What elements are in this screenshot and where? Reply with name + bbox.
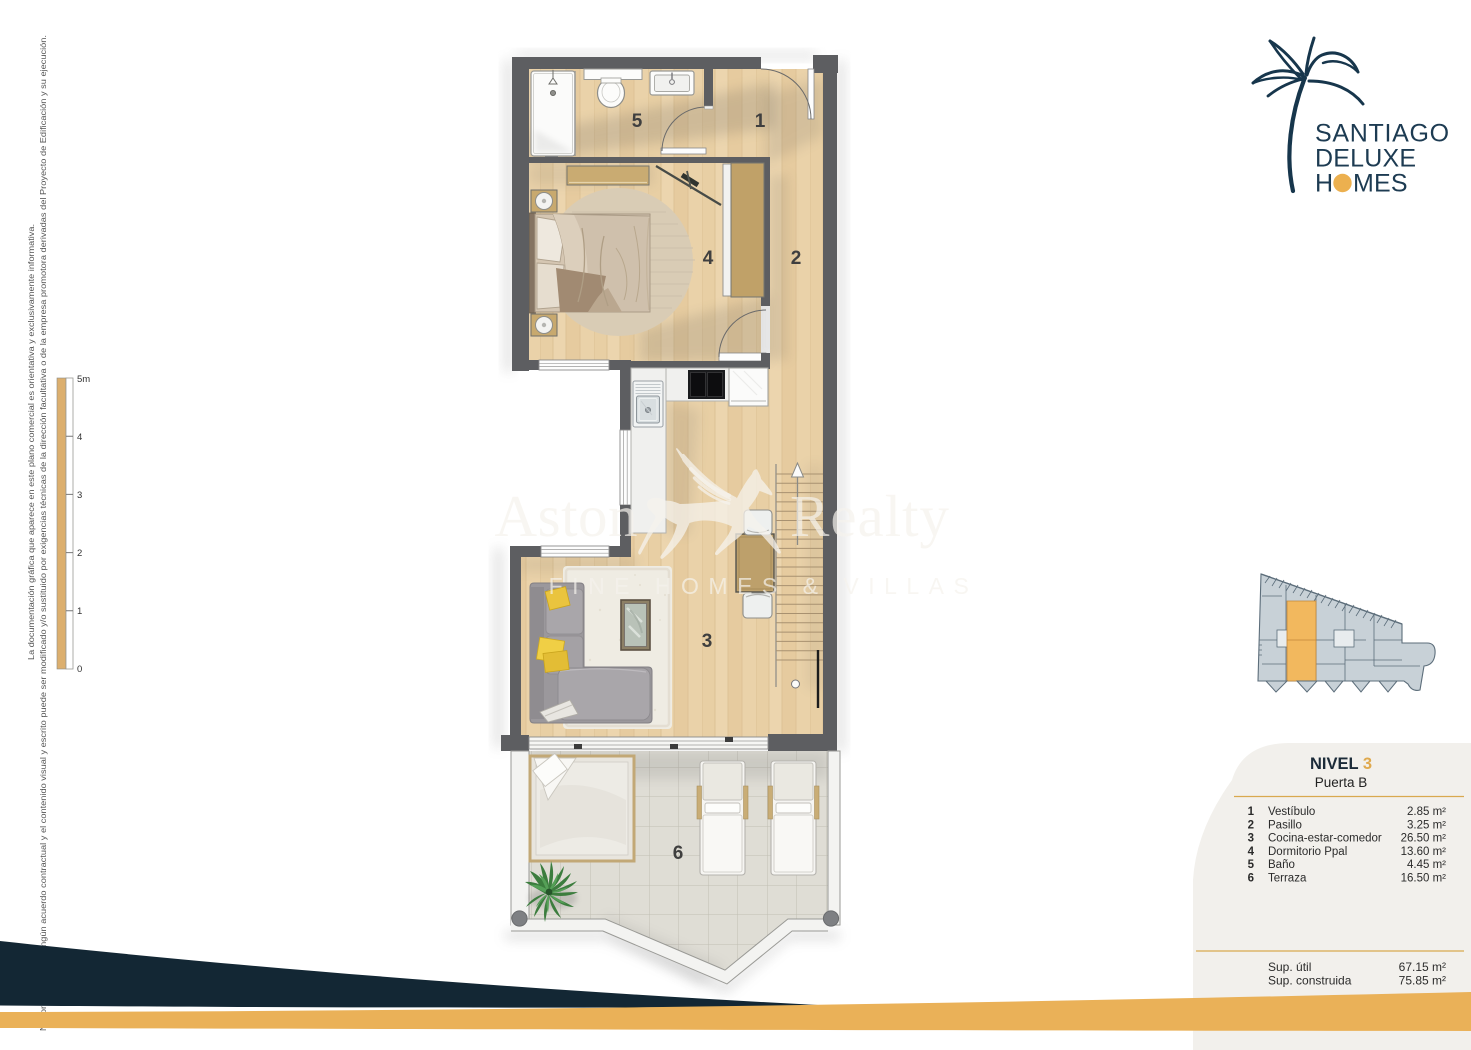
svg-text:Pasillo: Pasillo bbox=[1268, 819, 1302, 831]
svg-text:Realty: Realty bbox=[790, 483, 950, 549]
svg-text:3: 3 bbox=[702, 631, 713, 652]
svg-text:2: 2 bbox=[791, 248, 802, 269]
svg-text:Aston: Aston bbox=[495, 483, 638, 549]
svg-text:2.85 m²: 2.85 m² bbox=[1407, 806, 1446, 818]
svg-text:3: 3 bbox=[1248, 833, 1254, 845]
svg-text:Sup. construida: Sup. construida bbox=[1268, 974, 1352, 988]
svg-text:3: 3 bbox=[77, 490, 82, 501]
svg-text:4: 4 bbox=[703, 248, 714, 269]
svg-text:5: 5 bbox=[1248, 859, 1255, 871]
svg-text:NIVEL 3: NIVEL 3 bbox=[1310, 755, 1372, 773]
svg-text:5m: 5m bbox=[77, 374, 90, 385]
svg-text:16.50 m²: 16.50 m² bbox=[1401, 873, 1447, 885]
svg-text:MES: MES bbox=[1353, 170, 1408, 198]
svg-text:75.85 m²: 75.85 m² bbox=[1399, 974, 1446, 988]
svg-text:1: 1 bbox=[755, 111, 766, 132]
svg-text:0: 0 bbox=[77, 664, 82, 675]
svg-text:26.50 m²: 26.50 m² bbox=[1401, 833, 1447, 845]
svg-text:6: 6 bbox=[1248, 873, 1254, 885]
svg-text:Sup. útil: Sup. útil bbox=[1268, 960, 1311, 974]
svg-text:1: 1 bbox=[77, 606, 82, 617]
svg-text:67.15 m²: 67.15 m² bbox=[1399, 960, 1446, 974]
svg-text:4: 4 bbox=[77, 432, 82, 443]
svg-text:13.60 m²: 13.60 m² bbox=[1401, 846, 1447, 858]
svg-text:DELUXE: DELUXE bbox=[1315, 145, 1416, 173]
svg-text:Terraza: Terraza bbox=[1268, 873, 1307, 885]
svg-text:Dormitorio Ppal: Dormitorio Ppal bbox=[1268, 846, 1347, 858]
svg-text:SANTIAGO: SANTIAGO bbox=[1315, 120, 1450, 148]
svg-text:4: 4 bbox=[1248, 846, 1255, 858]
svg-text:No forma parte de ningún acuer: No forma parte de ningún acuerdo contrac… bbox=[39, 35, 48, 1031]
svg-text:3.25 m²: 3.25 m² bbox=[1407, 819, 1446, 831]
svg-text:1: 1 bbox=[1248, 806, 1255, 818]
svg-text:Puerta B: Puerta B bbox=[1315, 775, 1368, 790]
svg-text:Vestíbulo: Vestíbulo bbox=[1268, 806, 1315, 818]
svg-text:2: 2 bbox=[77, 548, 82, 559]
svg-text:La documentación gráfica que a: La documentación gráfica que aparece en … bbox=[27, 224, 36, 660]
svg-text:2: 2 bbox=[1248, 819, 1254, 831]
svg-text:FINE HOMES & VILLAS: FINE HOMES & VILLAS bbox=[549, 573, 979, 599]
svg-text:4.45 m²: 4.45 m² bbox=[1407, 859, 1446, 871]
svg-text:Baño: Baño bbox=[1268, 859, 1295, 871]
svg-text:5: 5 bbox=[632, 111, 643, 132]
svg-text:H: H bbox=[1315, 170, 1333, 198]
svg-text:6: 6 bbox=[673, 843, 684, 864]
svg-text:Cocina-estar-comedor: Cocina-estar-comedor bbox=[1268, 833, 1382, 845]
